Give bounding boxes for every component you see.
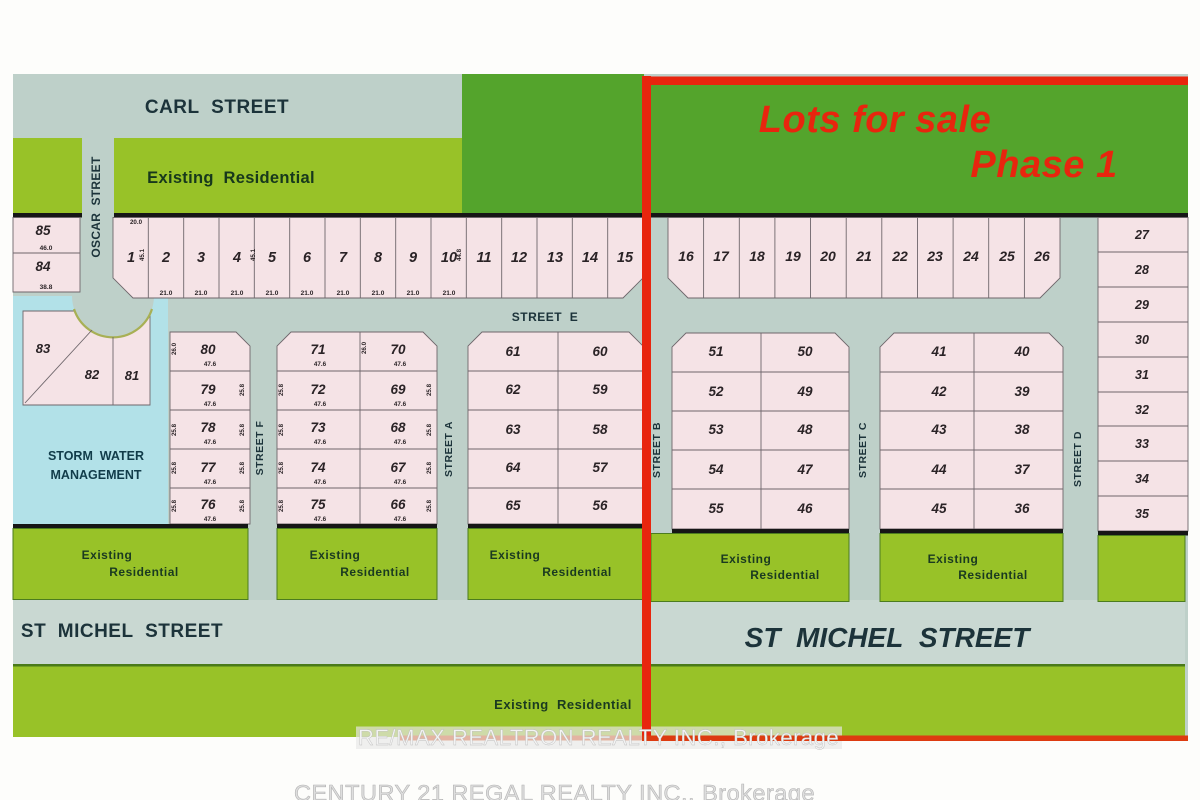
svg-text:25.8: 25.8 (239, 383, 246, 396)
svg-text:19: 19 (785, 248, 801, 264)
svg-text:ST MICHEL STREET: ST MICHEL STREET (745, 622, 1033, 653)
svg-text:9: 9 (409, 250, 417, 266)
svg-text:10: 10 (441, 250, 457, 266)
svg-text:25.8: 25.8 (426, 423, 433, 436)
svg-text:Existing: Existing (310, 548, 361, 562)
svg-text:47.6: 47.6 (314, 361, 327, 368)
svg-text:65: 65 (505, 498, 521, 513)
svg-text:STREET A: STREET A (443, 421, 455, 477)
svg-text:STREET B: STREET B (651, 422, 663, 478)
svg-text:45: 45 (930, 501, 947, 516)
svg-text:23: 23 (926, 248, 943, 264)
svg-text:Residential: Residential (958, 568, 1028, 582)
svg-text:Existing Residential: Existing Residential (494, 697, 632, 712)
svg-text:Residential: Residential (109, 565, 179, 579)
svg-text:75: 75 (310, 497, 326, 512)
svg-text:71: 71 (310, 342, 325, 357)
svg-text:47.6: 47.6 (394, 439, 407, 446)
svg-text:42: 42 (930, 384, 947, 399)
svg-text:ST MICHEL STREET: ST MICHEL STREET (21, 621, 223, 642)
svg-text:46: 46 (796, 501, 813, 516)
svg-text:25.8: 25.8 (171, 499, 178, 512)
svg-text:STORM WATER: STORM WATER (48, 449, 144, 463)
svg-text:11: 11 (476, 250, 491, 266)
svg-text:21.0: 21.0 (231, 290, 244, 297)
svg-text:20.0: 20.0 (130, 219, 143, 226)
svg-text:21.0: 21.0 (372, 290, 385, 297)
svg-text:25.8: 25.8 (278, 423, 285, 436)
svg-text:66: 66 (390, 497, 406, 512)
svg-text:47.6: 47.6 (394, 401, 407, 408)
svg-text:45.1: 45.1 (250, 248, 257, 261)
svg-text:21.0: 21.0 (443, 290, 456, 297)
svg-text:Existing Residential: Existing Residential (147, 169, 315, 187)
svg-text:CENTURY 21 REGAL REALTY INC.,: CENTURY 21 REGAL REALTY INC., Brokerage (294, 780, 815, 800)
svg-text:47.6: 47.6 (314, 401, 327, 408)
svg-text:25.8: 25.8 (426, 383, 433, 396)
svg-text:36: 36 (1014, 501, 1030, 516)
svg-text:26.0: 26.0 (361, 341, 368, 354)
svg-text:72: 72 (310, 382, 326, 397)
svg-text:4: 4 (232, 250, 241, 266)
svg-text:20: 20 (819, 248, 836, 264)
svg-text:82: 82 (85, 367, 100, 382)
svg-text:81: 81 (125, 368, 139, 383)
svg-text:46.0: 46.0 (40, 245, 53, 252)
svg-text:31: 31 (1135, 368, 1149, 382)
svg-text:Existing: Existing (490, 548, 541, 562)
svg-text:21.0: 21.0 (266, 290, 279, 297)
svg-text:33: 33 (1135, 437, 1149, 451)
svg-text:47.6: 47.6 (204, 361, 217, 368)
svg-text:43: 43 (930, 422, 947, 437)
svg-text:50: 50 (797, 344, 813, 359)
svg-text:25.8: 25.8 (239, 499, 246, 512)
svg-text:28: 28 (1134, 263, 1149, 277)
svg-text:40: 40 (1013, 344, 1030, 359)
svg-text:5: 5 (268, 250, 277, 266)
svg-text:8: 8 (374, 250, 383, 266)
svg-text:Residential: Residential (542, 565, 612, 579)
svg-text:56: 56 (592, 498, 608, 513)
svg-text:47.6: 47.6 (394, 361, 407, 368)
svg-text:15: 15 (617, 250, 634, 266)
svg-text:12: 12 (511, 250, 527, 266)
svg-text:Existing: Existing (928, 552, 979, 566)
svg-text:25.8: 25.8 (239, 423, 246, 436)
svg-text:63: 63 (505, 422, 521, 437)
svg-text:54: 54 (708, 462, 724, 477)
svg-text:2: 2 (161, 250, 170, 266)
svg-text:Lots for sale: Lots for sale (759, 99, 991, 141)
svg-text:25.8: 25.8 (278, 383, 285, 396)
svg-text:47: 47 (796, 462, 814, 477)
svg-text:47.6: 47.6 (394, 516, 407, 523)
svg-text:17: 17 (713, 248, 730, 264)
svg-text:35: 35 (1135, 507, 1150, 521)
svg-text:52: 52 (708, 384, 724, 399)
svg-text:18: 18 (749, 248, 765, 264)
svg-text:49: 49 (796, 384, 813, 399)
svg-text:47.6: 47.6 (314, 439, 327, 446)
svg-text:61: 61 (505, 344, 520, 359)
svg-text:48: 48 (796, 422, 813, 437)
svg-text:25: 25 (998, 248, 1015, 264)
svg-text:55: 55 (708, 501, 724, 516)
svg-text:21.0: 21.0 (337, 290, 350, 297)
svg-text:1: 1 (127, 250, 135, 266)
svg-text:13: 13 (547, 250, 563, 266)
svg-text:24: 24 (962, 248, 979, 264)
svg-text:67: 67 (390, 460, 407, 475)
svg-text:83: 83 (36, 341, 51, 356)
svg-text:39: 39 (1014, 384, 1030, 399)
svg-text:69: 69 (390, 382, 406, 397)
svg-text:26.0: 26.0 (171, 342, 178, 355)
svg-text:STREET F: STREET F (254, 421, 266, 476)
svg-text:38.8: 38.8 (40, 284, 53, 291)
svg-text:34: 34 (1135, 472, 1149, 486)
svg-text:MANAGEMENT: MANAGEMENT (51, 468, 142, 482)
svg-text:77: 77 (200, 460, 217, 475)
svg-text:58: 58 (592, 422, 608, 437)
svg-text:RE/MAX REALTRON REALTY INC., B: RE/MAX REALTRON REALTY INC., Brokerage (358, 725, 839, 750)
svg-text:85: 85 (35, 223, 51, 238)
svg-text:21.0: 21.0 (160, 290, 173, 297)
svg-text:STREET D: STREET D (1072, 431, 1084, 487)
svg-text:73: 73 (310, 420, 326, 435)
svg-text:68: 68 (390, 420, 406, 435)
svg-text:25.8: 25.8 (171, 461, 178, 474)
svg-text:25.8: 25.8 (426, 499, 433, 512)
svg-text:21: 21 (855, 248, 872, 264)
svg-text:47.6: 47.6 (314, 516, 327, 523)
svg-text:Phase 1: Phase 1 (970, 144, 1117, 186)
svg-text:47.6: 47.6 (394, 479, 407, 486)
svg-text:47.6: 47.6 (204, 479, 217, 486)
svg-text:44: 44 (930, 462, 947, 477)
svg-text:60: 60 (592, 344, 608, 359)
svg-text:59: 59 (592, 382, 608, 397)
svg-text:Residential: Residential (750, 568, 820, 582)
svg-text:47.6: 47.6 (204, 401, 217, 408)
svg-text:70: 70 (390, 342, 406, 357)
svg-text:37: 37 (1014, 462, 1031, 477)
svg-text:Residential: Residential (340, 565, 410, 579)
svg-text:3: 3 (197, 250, 205, 266)
svg-text:41: 41 (930, 344, 946, 359)
svg-text:21.0: 21.0 (195, 290, 208, 297)
svg-text:21.0: 21.0 (301, 290, 314, 297)
svg-text:47.6: 47.6 (204, 516, 217, 523)
svg-text:STREET C: STREET C (857, 422, 869, 478)
svg-text:57: 57 (592, 460, 609, 475)
svg-text:80: 80 (200, 342, 216, 357)
svg-text:30: 30 (1135, 333, 1149, 347)
svg-text:29: 29 (1134, 298, 1149, 312)
svg-text:6: 6 (303, 250, 312, 266)
svg-text:7: 7 (339, 250, 348, 266)
svg-text:25.8: 25.8 (278, 499, 285, 512)
svg-text:51: 51 (708, 344, 723, 359)
svg-text:45.1: 45.1 (139, 248, 146, 261)
svg-text:78: 78 (200, 420, 216, 435)
svg-text:14: 14 (582, 250, 598, 266)
svg-text:47.6: 47.6 (204, 439, 217, 446)
svg-text:74: 74 (310, 460, 326, 475)
svg-text:16: 16 (678, 248, 694, 264)
svg-text:25.8: 25.8 (278, 461, 285, 474)
svg-text:25.8: 25.8 (239, 461, 246, 474)
svg-text:84: 84 (35, 259, 51, 274)
svg-text:27: 27 (1134, 228, 1150, 242)
svg-text:CARL STREET: CARL STREET (145, 97, 289, 118)
svg-text:32: 32 (1135, 403, 1149, 417)
svg-text:38: 38 (1014, 422, 1030, 437)
svg-text:25.8: 25.8 (426, 461, 433, 474)
svg-text:47.6: 47.6 (314, 479, 327, 486)
svg-text:25.8: 25.8 (171, 423, 178, 436)
svg-text:21.0: 21.0 (407, 290, 420, 297)
svg-text:53: 53 (708, 422, 724, 437)
svg-text:76: 76 (200, 497, 216, 512)
svg-text:STREET E: STREET E (512, 310, 579, 324)
svg-text:OSCAR STREET: OSCAR STREET (89, 156, 103, 258)
svg-text:62: 62 (505, 382, 521, 397)
svg-text:Existing: Existing (721, 552, 772, 566)
svg-text:Existing: Existing (82, 548, 133, 562)
svg-text:64: 64 (505, 460, 521, 475)
svg-text:26: 26 (1033, 248, 1050, 264)
svg-text:44.8: 44.8 (456, 248, 463, 261)
svg-text:79: 79 (200, 382, 216, 397)
svg-text:22: 22 (891, 248, 908, 264)
